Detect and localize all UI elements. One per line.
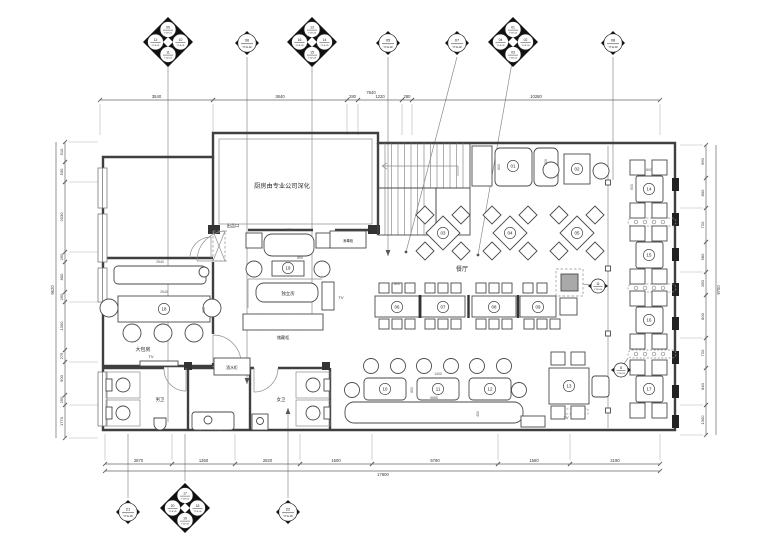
svg-text:YT-E-04: YT-E-04 <box>496 45 505 47</box>
svg-text:15: 15 <box>310 50 314 54</box>
svg-text:1770: 1770 <box>59 416 64 426</box>
svg-text:01: 01 <box>511 164 516 169</box>
floor-plan-svg: 3540364028012202801028076402870136028201… <box>0 0 760 544</box>
tv-label-2: TV <box>338 295 343 300</box>
svg-text:1500: 1500 <box>331 458 341 463</box>
svg-text:YT-E-04: YT-E-04 <box>509 58 518 60</box>
room-label-mens_toilet: 男卫 <box>156 397 165 403</box>
room-label-dining_hall: 餐厅 <box>456 265 468 273</box>
table-label-13: 13 <box>563 380 574 391</box>
svg-text:YT-E-02: YT-E-02 <box>452 45 462 49</box>
svg-text:510: 510 <box>59 148 64 155</box>
table-label-17: 17 <box>643 383 654 394</box>
svg-text:YT-E-02: YT-E-02 <box>383 45 393 49</box>
table-label-16: 16 <box>643 314 654 325</box>
svg-text:11: 11 <box>436 387 441 392</box>
svg-text:800: 800 <box>646 168 652 172</box>
svg-text:04: 04 <box>499 38 503 42</box>
svg-text:20: 20 <box>171 504 175 508</box>
svg-text:1300: 1300 <box>700 415 705 425</box>
table-label-01: 01 <box>507 160 518 171</box>
svg-text:19: 19 <box>286 266 291 271</box>
svg-text:YT-E-01: YT-E-01 <box>151 45 160 47</box>
svg-text:01: 01 <box>511 25 515 29</box>
svg-text:06: 06 <box>245 38 250 43</box>
svg-text:19: 19 <box>183 516 187 520</box>
svg-text:15: 15 <box>647 253 652 258</box>
svg-text:1560: 1560 <box>529 458 539 463</box>
svg-text:7640: 7640 <box>366 90 376 95</box>
room-label-large_private_room: 大包房 <box>135 346 150 353</box>
svg-text:900: 900 <box>59 374 64 381</box>
table-label-18: 18 <box>158 303 169 314</box>
svg-text:720: 720 <box>700 349 705 356</box>
elevation-marker-single: 08YT-E-02 <box>601 31 625 55</box>
tv-label-3: TV <box>563 415 568 420</box>
svg-text:1720: 1720 <box>285 228 293 232</box>
svg-text:17600: 17600 <box>377 472 389 477</box>
svg-text:05: 05 <box>575 231 580 236</box>
svg-text:2820: 2820 <box>263 458 273 463</box>
svg-text:1360: 1360 <box>199 458 209 463</box>
svg-text:YT-E-01: YT-E-01 <box>164 33 173 35</box>
svg-text:580: 580 <box>700 253 705 260</box>
table-label-05: 05 <box>571 227 582 238</box>
svg-text:260: 260 <box>59 253 64 260</box>
svg-text:16: 16 <box>647 318 652 323</box>
svg-text:2870: 2870 <box>134 458 144 463</box>
table-label-19: 19 <box>282 262 293 273</box>
svg-text:840: 840 <box>700 382 705 389</box>
svg-text:18: 18 <box>196 504 200 508</box>
room-label-storage_cabinet: 储藏柜 <box>277 334 290 341</box>
room-label-womens_toilet: 女卫 <box>277 396 286 403</box>
svg-text:YT-E-03: YT-E-03 <box>308 58 317 60</box>
svg-text:800: 800 <box>297 256 303 260</box>
svg-text:9700: 9700 <box>716 285 721 295</box>
svg-text:17: 17 <box>647 387 652 392</box>
elevation-marker-single: 21YT-E-05 <box>116 500 140 524</box>
table-label-02: 02 <box>571 163 582 174</box>
svg-text:04: 04 <box>508 231 513 236</box>
svg-text:260: 260 <box>59 293 64 300</box>
svg-text:530: 530 <box>59 168 64 175</box>
svg-text:2190: 2190 <box>610 458 620 463</box>
svg-text:1220: 1220 <box>375 94 385 99</box>
svg-text:2540: 2540 <box>160 290 168 294</box>
svg-text:02: 02 <box>524 38 528 42</box>
svg-text:YT-E-02: YT-E-02 <box>608 45 618 49</box>
svg-text:12: 12 <box>154 38 158 42</box>
svg-text:280: 280 <box>349 94 357 99</box>
table-label-10: 10 <box>379 383 390 394</box>
table-label-15: 15 <box>643 249 654 260</box>
svg-text:800: 800 <box>700 189 705 196</box>
svg-text:22: 22 <box>286 507 291 512</box>
svg-text:1400: 1400 <box>434 372 442 376</box>
svg-text:YT-E-01: YT-E-01 <box>164 58 173 60</box>
svg-text:280: 280 <box>700 279 705 286</box>
svg-text:08: 08 <box>492 305 497 310</box>
svg-text:800: 800 <box>700 312 705 319</box>
svg-text:06: 06 <box>395 305 400 310</box>
svg-text:YT-E-05: YT-E-05 <box>181 524 190 526</box>
elevation-marker-single: 22YT-E-05 <box>276 500 300 524</box>
svg-text:YT-E-05: YT-E-05 <box>283 514 293 518</box>
svg-text:YT-E-06: YT-E-06 <box>617 373 626 375</box>
svg-text:800: 800 <box>394 282 400 286</box>
svg-text:1300: 1300 <box>59 321 64 331</box>
svg-text:2540: 2540 <box>156 260 164 264</box>
svg-text:YT-E-05: YT-E-05 <box>193 511 202 513</box>
svg-text:960: 960 <box>700 157 705 164</box>
room-label-sanitizer_cabinet: 消毒柜 <box>343 238 354 243</box>
table-label-04: 04 <box>504 227 515 238</box>
svg-text:07: 07 <box>441 305 446 310</box>
elevation-marker-single: 07YT-E-02 <box>445 31 469 55</box>
svg-text:9620: 9620 <box>50 285 55 295</box>
table-label-12: 12 <box>484 383 495 394</box>
svg-text:21: 21 <box>126 507 131 512</box>
svg-text:2030: 2030 <box>59 212 64 222</box>
svg-text:YT-E-03: YT-E-03 <box>320 45 329 47</box>
svg-text:09: 09 <box>166 25 170 29</box>
elevation-marker-cluster: 01YT-E-0404YT-E-0402YT-E-0403YT-E-04 <box>488 17 538 67</box>
room-label-drink_cabinet: 酒水柜 <box>226 365 238 370</box>
elevation-marker-single: 06YT-E-02 <box>235 31 259 55</box>
svg-text:09: 09 <box>536 305 541 310</box>
svg-text:05: 05 <box>386 38 391 43</box>
elevation-marker-inplan: 11YT-E-06 <box>588 279 608 293</box>
svg-text:13: 13 <box>567 384 572 389</box>
svg-text:17: 17 <box>183 491 187 495</box>
svg-text:YT-E-06: YT-E-06 <box>594 289 603 291</box>
svg-text:5685: 5685 <box>430 396 438 400</box>
svg-text:16: 16 <box>298 38 302 42</box>
tv-label-1: TV <box>148 354 153 359</box>
svg-text:11: 11 <box>596 282 600 286</box>
svg-text:13: 13 <box>310 25 314 29</box>
svg-text:5790: 5790 <box>430 458 440 463</box>
svg-text:02: 02 <box>575 167 580 172</box>
svg-text:800: 800 <box>410 387 414 393</box>
elevation-marker-inplan: 8YT-E-06 <box>611 363 631 377</box>
table-label-06: 06 <box>391 301 402 312</box>
elevation-marker-single: 05YT-E-02 <box>376 31 400 55</box>
svg-text:03: 03 <box>441 231 446 236</box>
svg-text:YT-E-02: YT-E-02 <box>242 45 252 49</box>
svg-text:450: 450 <box>476 411 480 417</box>
svg-text:YT-E-04: YT-E-04 <box>509 33 518 35</box>
svg-text:YT-E-04: YT-E-04 <box>521 45 530 47</box>
svg-text:12: 12 <box>488 387 493 392</box>
svg-text:YT-E-03: YT-E-03 <box>308 33 317 35</box>
room-label-serving_port: 出品口 <box>227 222 240 229</box>
table-label-07: 07 <box>437 301 448 312</box>
svg-text:YT-E-05: YT-E-05 <box>123 514 133 518</box>
svg-text:280: 280 <box>404 94 412 99</box>
svg-text:3640: 3640 <box>275 94 285 99</box>
svg-text:250: 250 <box>59 396 64 403</box>
svg-text:3540: 3540 <box>152 94 162 99</box>
room-label-private_room: 独立房 <box>281 290 295 297</box>
svg-text:800: 800 <box>497 164 501 170</box>
table-label-08: 08 <box>488 301 499 312</box>
svg-text:800: 800 <box>59 273 64 280</box>
svg-text:YT-E-01: YT-E-01 <box>176 45 185 47</box>
svg-text:YT-E-05: YT-E-05 <box>181 499 190 501</box>
svg-text:YT-E-05: YT-E-05 <box>168 511 177 513</box>
drawing-canvas: 3540364028012202801028076402870136028201… <box>0 0 760 544</box>
table-label-09: 09 <box>532 301 543 312</box>
elevation-marker-cluster: 17YT-E-0520YT-E-0518YT-E-0519YT-E-05 <box>160 483 210 533</box>
svg-text:07: 07 <box>455 38 460 43</box>
elevation-marker-cluster: 13YT-E-0316YT-E-0314YT-E-0315YT-E-03 <box>287 17 337 67</box>
svg-text:10: 10 <box>383 387 388 392</box>
svg-text:800: 800 <box>202 307 206 313</box>
svg-text:10280: 10280 <box>530 94 542 99</box>
table-label-14: 14 <box>643 183 654 194</box>
svg-text:8: 8 <box>620 366 622 370</box>
table-label-11: 11 <box>432 383 443 394</box>
table-label-03: 03 <box>437 227 448 238</box>
room-label-kitchen: 厨房由专业公司深化 <box>254 182 310 190</box>
svg-text:03: 03 <box>511 50 515 54</box>
svg-text:08: 08 <box>611 38 616 43</box>
svg-text:YT-E-03: YT-E-03 <box>295 45 304 47</box>
svg-text:10: 10 <box>179 38 183 42</box>
svg-text:600: 600 <box>630 184 634 190</box>
svg-text:300: 300 <box>544 159 548 165</box>
svg-text:275: 275 <box>59 352 64 359</box>
svg-text:18: 18 <box>162 307 167 312</box>
svg-text:720: 720 <box>700 221 705 228</box>
svg-text:14: 14 <box>647 187 652 192</box>
elevation-marker-cluster: 09YT-E-0112YT-E-0110YT-E-0111YT-E-01 <box>143 17 193 67</box>
svg-text:14: 14 <box>323 38 327 42</box>
svg-text:11: 11 <box>166 50 170 54</box>
